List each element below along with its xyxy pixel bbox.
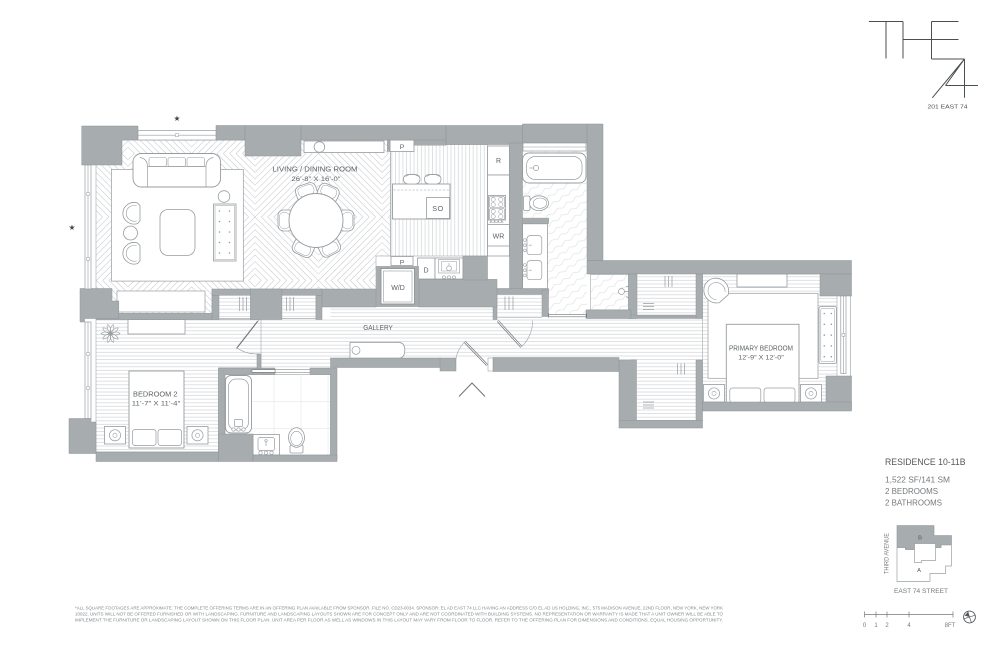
svg-text:RESIDENCE 10-11B: RESIDENCE 10-11B <box>885 457 966 467</box>
svg-text:201 EAST 74: 201 EAST 74 <box>928 105 968 111</box>
svg-text:★: ★ <box>174 114 181 123</box>
svg-text:BEDROOM 2: BEDROOM 2 <box>133 390 178 398</box>
svg-text:B: B <box>918 536 922 542</box>
svg-text:2 BEDROOMS: 2 BEDROOMS <box>885 487 938 496</box>
svg-text:P: P <box>400 144 405 151</box>
svg-text:26’-8″ X 16’-0″: 26’-8″ X 16’-0″ <box>292 176 342 183</box>
svg-text:A: A <box>917 568 921 574</box>
svg-text:12’-9″ X 12’-0″: 12’-9″ X 12’-0″ <box>738 355 784 362</box>
svg-text:IMPLEMENT THE FURNITURE OR LAN: IMPLEMENT THE FURNITURE OR LANDSCAPING L… <box>75 618 723 623</box>
svg-text:LIVING / DINING ROOM: LIVING / DINING ROOM <box>273 166 358 174</box>
svg-text:EAST 74 STREET: EAST 74 STREET <box>894 588 948 595</box>
svg-text:THIRD AVENUE: THIRD AVENUE <box>884 533 891 574</box>
svg-text:8FT: 8FT <box>945 623 956 629</box>
svg-text:10022. UNITS WILL NOT BE OFFER: 10022. UNITS WILL NOT BE OFFERED FURNISH… <box>75 612 723 617</box>
svg-text:R: R <box>496 158 501 165</box>
svg-text:W/D: W/D <box>391 285 405 292</box>
svg-text:PRIMARY BEDROOM: PRIMARY BEDROOM <box>729 344 793 352</box>
svg-text:P: P <box>400 260 405 267</box>
svg-text:11’-7″ X 11’-4″: 11’-7″ X 11’-4″ <box>132 400 181 407</box>
svg-text:SO: SO <box>432 204 444 213</box>
svg-text:GALLERY: GALLERY <box>363 324 393 332</box>
svg-text:★: ★ <box>69 223 76 232</box>
svg-text:1,522 SF/141 SM: 1,522 SF/141 SM <box>885 476 950 485</box>
svg-text:2 BATHROOMS: 2 BATHROOMS <box>885 499 942 508</box>
svg-text:D: D <box>423 268 428 275</box>
svg-text:*ALL SQUARE FOOTAGES ARE APPRO: *ALL SQUARE FOOTAGES ARE APPROXIMATE. TH… <box>75 606 724 611</box>
svg-text:WR: WR <box>493 234 505 241</box>
